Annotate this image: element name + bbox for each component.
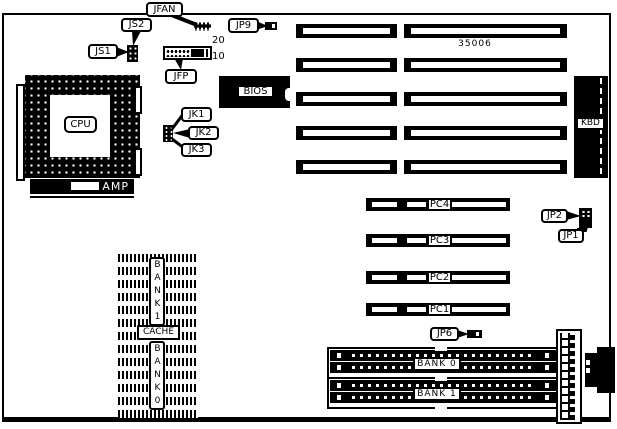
socket-bracket-top (134, 86, 142, 114)
board-number: 35006 (452, 40, 498, 49)
isa-slot (296, 58, 397, 72)
jp1-label: JP1 (558, 229, 584, 243)
js2-label: JS2 (121, 18, 152, 32)
jfp-pin10-label: 10 (212, 52, 225, 62)
cache-bank0-label: BANK0 (149, 341, 165, 410)
jfp-pin20-label: 20 (212, 36, 225, 46)
zif-lever (16, 84, 25, 181)
isa-slot (404, 24, 567, 38)
isa-slot (404, 126, 567, 140)
bios-chip-notch (285, 88, 291, 101)
jfp-label: JFP (165, 69, 197, 84)
power-connector (556, 329, 582, 424)
pc2-label: PC2 (427, 271, 452, 284)
pc1-label: PC1 (427, 303, 452, 316)
cpu-label: CPU (64, 116, 97, 133)
isa-slot (296, 126, 397, 140)
isa-slot (404, 92, 567, 106)
bios-label: BIOS (237, 85, 274, 98)
din-connector-foot (597, 386, 615, 393)
jp6-connector (467, 330, 482, 338)
cache-bank1-label: BANK1 (149, 257, 165, 326)
jk1-label: JK1 (181, 107, 212, 122)
socket-bracket-bottom (134, 148, 142, 176)
kbd-label: KBD (576, 117, 605, 130)
pc4-label: PC4 (427, 198, 452, 211)
amp-connector: AMP (30, 179, 134, 194)
isa-slot (296, 160, 397, 174)
isa-slot (404, 160, 567, 174)
isa-slot (296, 92, 397, 106)
pc3-label: PC3 (427, 234, 452, 247)
cache-label: CACHE (137, 325, 180, 340)
amp-underline (30, 196, 134, 198)
jp9-label: JP9 (228, 18, 259, 33)
js1-label: JS1 (88, 44, 118, 59)
din-connector-body (585, 353, 615, 387)
jfan-connector (194, 22, 211, 31)
jp9-connector (265, 22, 277, 30)
jp2-label: JP2 (541, 209, 568, 223)
jk2-label: JK2 (188, 126, 219, 140)
isa-slot (404, 58, 567, 72)
amp-label: AMP (102, 180, 129, 193)
simm-bank0-label: BANK 0 (413, 357, 461, 371)
amp-connector-key (71, 182, 99, 190)
jfp-header (163, 46, 212, 60)
jp1-jp2-jumper (579, 208, 592, 228)
isa-slot (296, 24, 397, 38)
jp6-label: JP6 (430, 327, 459, 341)
simm-bank1-label: BANK 1 (413, 387, 461, 401)
motherboard-diagram: AMP 35006 (0, 0, 617, 429)
jk-connector (163, 125, 173, 142)
js-jumper-block (127, 45, 138, 62)
jfan-label: JFAN (146, 2, 183, 17)
jk3-label: JK3 (181, 143, 212, 157)
